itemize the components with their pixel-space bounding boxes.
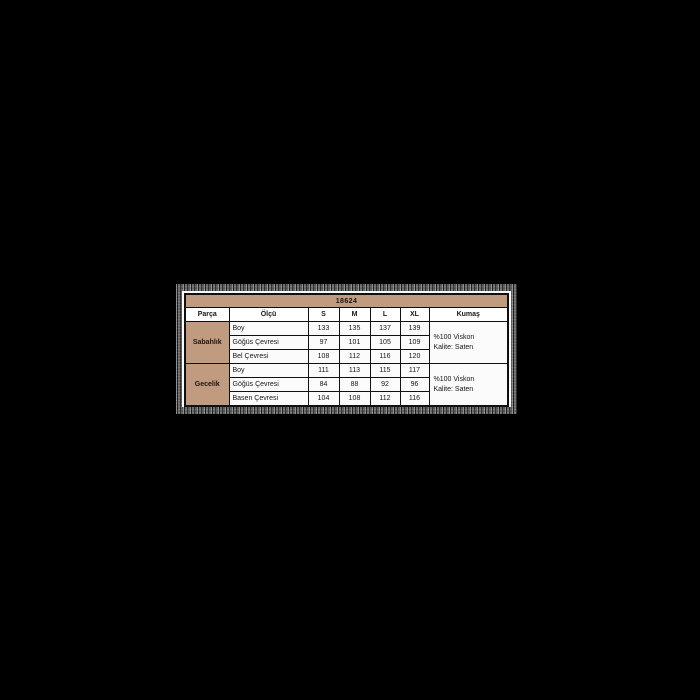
model-code-title: 18624 (185, 294, 508, 308)
measure-label-cell: Göğüs Çevresi (229, 378, 308, 392)
col-header-olcu: Ölçü (229, 308, 308, 322)
size-value-cell: 135 (339, 322, 370, 336)
size-value-cell: 113 (339, 364, 370, 378)
table-row: Gecelik Boy 111 113 115 117 %100 Viskon … (185, 364, 508, 378)
size-value-cell: 92 (370, 378, 400, 392)
size-value-cell: 97 (308, 336, 339, 350)
measure-label-cell: Basen Çevresi (229, 392, 308, 407)
table-row: 18624 (185, 294, 508, 308)
size-value-cell: 112 (370, 392, 400, 407)
measure-label-cell: Göğüs Çevresi (229, 336, 308, 350)
size-value-cell: 133 (308, 322, 339, 336)
col-header-size-l: L (370, 308, 400, 322)
page-background: { "page": { "background_color": "#000000… (0, 0, 700, 700)
size-value-cell: 105 (370, 336, 400, 350)
size-value-cell: 120 (400, 350, 429, 364)
size-value-cell: 112 (339, 350, 370, 364)
col-header-size-m: M (339, 308, 370, 322)
fabric-info-gecelik: %100 Viskon Kalite: Saten (429, 364, 508, 407)
size-value-cell: 115 (370, 364, 400, 378)
group-cell-gecelik: Gecelik (185, 364, 229, 407)
fabric-line: Kalite: Saten (434, 344, 508, 351)
col-header-size-xl: XL (400, 308, 429, 322)
size-value-cell: 116 (370, 350, 400, 364)
fabric-line: %100 Viskon (434, 376, 508, 383)
col-header-kumas: Kumaş (429, 308, 508, 322)
table-row: Sabahlık Boy 133 135 137 139 %100 Viskon… (185, 322, 508, 336)
measure-label-cell: Bel Çevresi (229, 350, 308, 364)
size-value-cell: 104 (308, 392, 339, 407)
size-value-cell: 101 (339, 336, 370, 350)
table-row: Parça Ölçü S M L XL Kumaş (185, 308, 508, 322)
size-value-cell: 117 (400, 364, 429, 378)
fabric-line: Kalite: Saten (434, 386, 508, 393)
group-cell-sabahlik: Sabahlık (185, 322, 229, 364)
size-value-cell: 108 (339, 392, 370, 407)
size-chart-card-inner: 18624 Parça Ölçü S M L XL Kumaş Sabahlık… (182, 291, 511, 407)
size-value-cell: 137 (370, 322, 400, 336)
size-chart-table: 18624 Parça Ölçü S M L XL Kumaş Sabahlık… (184, 293, 509, 407)
measure-label-cell: Boy (229, 364, 308, 378)
fabric-info-sabahlik: %100 Viskon Kalite: Saten (429, 322, 508, 364)
size-value-cell: 84 (308, 378, 339, 392)
measure-label-cell: Boy (229, 322, 308, 336)
col-header-size-s: S (308, 308, 339, 322)
size-value-cell: 109 (400, 336, 429, 350)
col-header-parca: Parça (185, 308, 229, 322)
size-value-cell: 116 (400, 392, 429, 407)
size-chart-card: 18624 Parça Ölçü S M L XL Kumaş Sabahlık… (176, 284, 517, 414)
size-value-cell: 88 (339, 378, 370, 392)
size-value-cell: 96 (400, 378, 429, 392)
size-value-cell: 139 (400, 322, 429, 336)
size-value-cell: 108 (308, 350, 339, 364)
size-value-cell: 111 (308, 364, 339, 378)
fabric-line: %100 Viskon (434, 334, 508, 341)
